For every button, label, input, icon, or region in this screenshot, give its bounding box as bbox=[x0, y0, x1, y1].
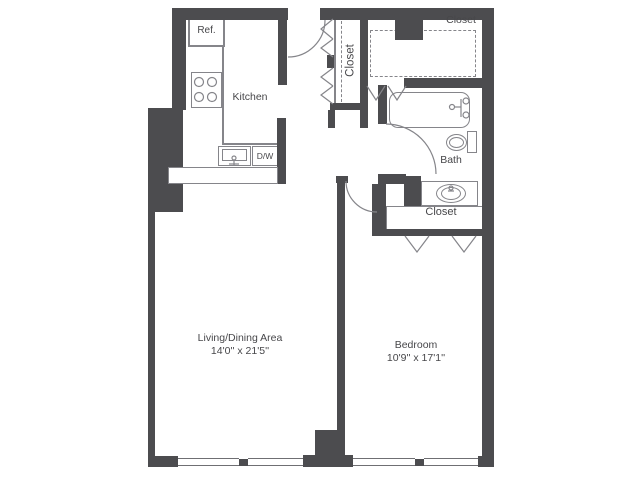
wall-hall-closet-bottom bbox=[404, 78, 490, 88]
dishwasher: D/W bbox=[252, 146, 278, 166]
entry-closet-bifold-icon bbox=[321, 68, 333, 86]
wall-kitchen-east-upper bbox=[278, 20, 287, 85]
bedroom-closet-bifold-icon bbox=[405, 236, 429, 252]
hall-closet-column bbox=[395, 20, 423, 40]
wall-bedroom-closet-west bbox=[372, 184, 386, 236]
wall-right bbox=[482, 8, 494, 467]
refrigerator-label: Ref. bbox=[190, 16, 223, 45]
entry-door-arc-icon bbox=[288, 20, 325, 57]
living-dining-dimensions: 14'0'' x 21'5'' bbox=[170, 345, 310, 358]
kitchen-counter-front bbox=[222, 143, 278, 145]
bathtub bbox=[389, 92, 470, 128]
hall-closet-label: Closet bbox=[433, 14, 489, 27]
window-bedroom-left bbox=[353, 458, 415, 466]
kitchen-peninsula-counter bbox=[168, 167, 278, 184]
entry-closet-bifold-icon bbox=[321, 19, 333, 39]
wall-left-upper bbox=[172, 8, 186, 110]
bath-door-arc-icon bbox=[386, 124, 436, 174]
window-living-left bbox=[177, 458, 239, 466]
bedroom-label: Bedroom bbox=[346, 339, 486, 352]
wall-left-lower bbox=[148, 212, 155, 467]
entry-closet-front-line bbox=[334, 20, 336, 103]
wall-bath-west bbox=[378, 85, 387, 124]
entry-closet-label: Closet bbox=[345, 28, 358, 94]
window-bedroom-right bbox=[424, 458, 478, 466]
living-dining-label-group: Living/Dining Area 14'0'' x 21'5'' bbox=[170, 332, 310, 357]
wall-entry-closet-stub bbox=[328, 110, 335, 128]
entry-closet-door-handle bbox=[327, 55, 334, 68]
dishwasher-label: D/W bbox=[253, 147, 277, 165]
kitchen-label: Kitchen bbox=[214, 91, 286, 104]
bath-column bbox=[404, 176, 421, 206]
hall-closet-shelf-line bbox=[370, 30, 476, 77]
kitchen-sink-basin bbox=[222, 149, 247, 161]
wall-kitchen-east-lower bbox=[277, 118, 286, 184]
toilet-tank bbox=[467, 131, 477, 153]
living-dining-label: Living/Dining Area bbox=[170, 332, 310, 345]
bath-sink-inner bbox=[441, 187, 461, 200]
bedroom-dimensions: 10'9'' x 17'1'' bbox=[346, 352, 486, 365]
floor-plan: Ref. D/W bbox=[0, 0, 640, 480]
bath-label: Bath bbox=[431, 154, 471, 167]
wall-top-left bbox=[172, 8, 288, 20]
window-living-right bbox=[248, 458, 303, 466]
wall-left-block bbox=[148, 108, 183, 212]
wall-entry-closet-right bbox=[360, 20, 368, 128]
wall-bottom-right-corner bbox=[478, 456, 494, 467]
entry-closet-bifold-icon bbox=[321, 86, 333, 104]
wall-bedroom-closet-bottom bbox=[386, 229, 491, 236]
bedroom-closet-label: Closet bbox=[411, 206, 471, 219]
toilet-bowl-inner bbox=[449, 137, 464, 148]
wall-bottom-left-corner bbox=[148, 456, 178, 467]
window-mullion-left bbox=[239, 459, 248, 466]
symbols-overlay bbox=[0, 0, 640, 480]
wall-bath-south bbox=[378, 174, 406, 184]
entry-closet-rod-line bbox=[341, 21, 342, 102]
window-mullion-right bbox=[415, 459, 424, 466]
wall-divider-footing bbox=[315, 430, 345, 457]
wall-entry-closet-bottom bbox=[330, 103, 368, 110]
bedroom-label-group: Bedroom 10'9'' x 17'1'' bbox=[346, 339, 486, 364]
wall-living-bedroom-divider bbox=[337, 176, 345, 432]
bedroom-closet-bifold-icon bbox=[452, 236, 476, 252]
